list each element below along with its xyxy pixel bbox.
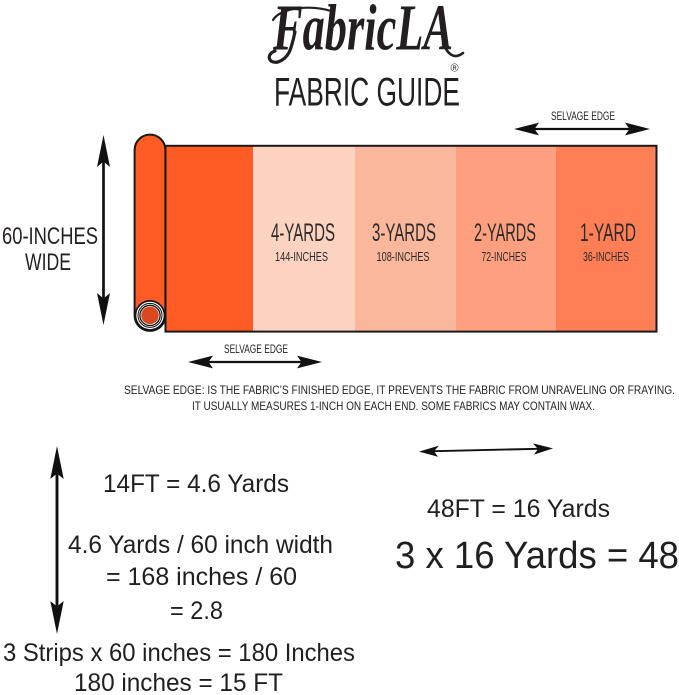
svg-text:36-INCHES: 36-INCHES — [583, 249, 629, 264]
svg-text:72-INCHES: 72-INCHES — [482, 249, 527, 264]
svg-text:108-INCHES: 108-INCHES — [377, 249, 430, 264]
svg-text:48FT = 16 Yards: 48FT = 16 Yards — [427, 495, 610, 523]
svg-text:144-INCHES: 144-INCHES — [275, 249, 328, 264]
svg-text:= 168 inches / 60: = 168 inches / 60 — [106, 563, 297, 591]
svg-text:60-INCHES: 60-INCHES — [2, 223, 98, 250]
svg-text:FABRIC GUIDE: FABRIC GUIDE — [274, 71, 460, 115]
svg-text:FabricLA: FabricLA — [272, 0, 453, 65]
svg-text:4-YARDS: 4-YARDS — [271, 219, 335, 247]
svg-text:SELVAGE EDGE: SELVAGE EDGE — [224, 342, 288, 356]
svg-text:SELVAGE EDGE: IS THE FABRIC’S: SELVAGE EDGE: IS THE FABRIC’S FINISHED E… — [124, 383, 675, 397]
svg-text:SELVAGE EDGE: SELVAGE EDGE — [551, 109, 615, 123]
svg-text:2-YARDS: 2-YARDS — [474, 219, 536, 247]
svg-text:180 inches = 15 FT: 180 inches = 15 FT — [74, 669, 283, 695]
svg-text:WIDE: WIDE — [25, 249, 71, 276]
svg-text:3 x 16 Yards = 48: 3 x 16 Yards = 48 — [395, 535, 679, 577]
svg-text:1-YARD: 1-YARD — [580, 219, 636, 247]
svg-text:= 2.8: = 2.8 — [170, 597, 223, 625]
svg-text:3-YARDS: 3-YARDS — [372, 219, 436, 247]
svg-text:3 Strips x 60 inches = 180 Inc: 3 Strips x 60 inches = 180 Inches — [3, 639, 355, 667]
svg-text:4.6 Yards / 60 inch width: 4.6 Yards / 60 inch width — [68, 531, 333, 559]
svg-text:IT USUALLY MEASURES 1-INCH ON: IT USUALLY MEASURES 1-INCH ON EACH END. … — [192, 399, 595, 413]
svg-text:14FT = 4.6 Yards: 14FT = 4.6 Yards — [103, 470, 289, 498]
